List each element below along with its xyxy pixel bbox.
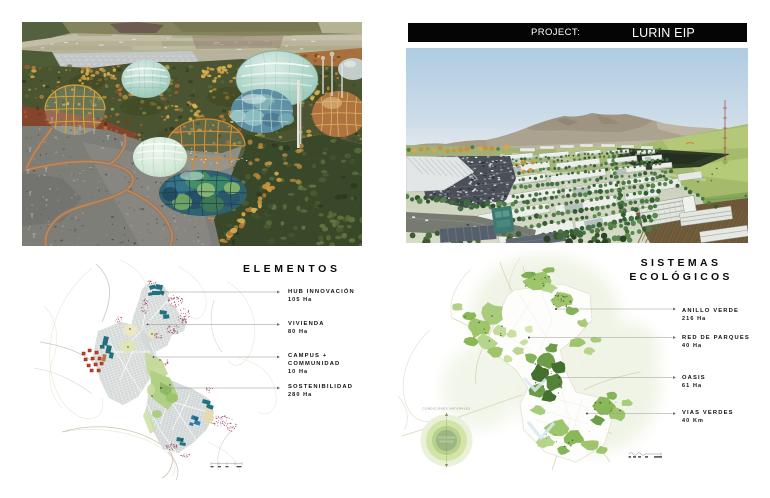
svg-text:CONDICIONES NATURALES: CONDICIONES NATURALES <box>422 407 470 411</box>
svg-text:ECOSISTEMAS: ECOSISTEMAS <box>438 437 456 440</box>
svg-text:NATURALES: NATURALES <box>439 441 454 444</box>
